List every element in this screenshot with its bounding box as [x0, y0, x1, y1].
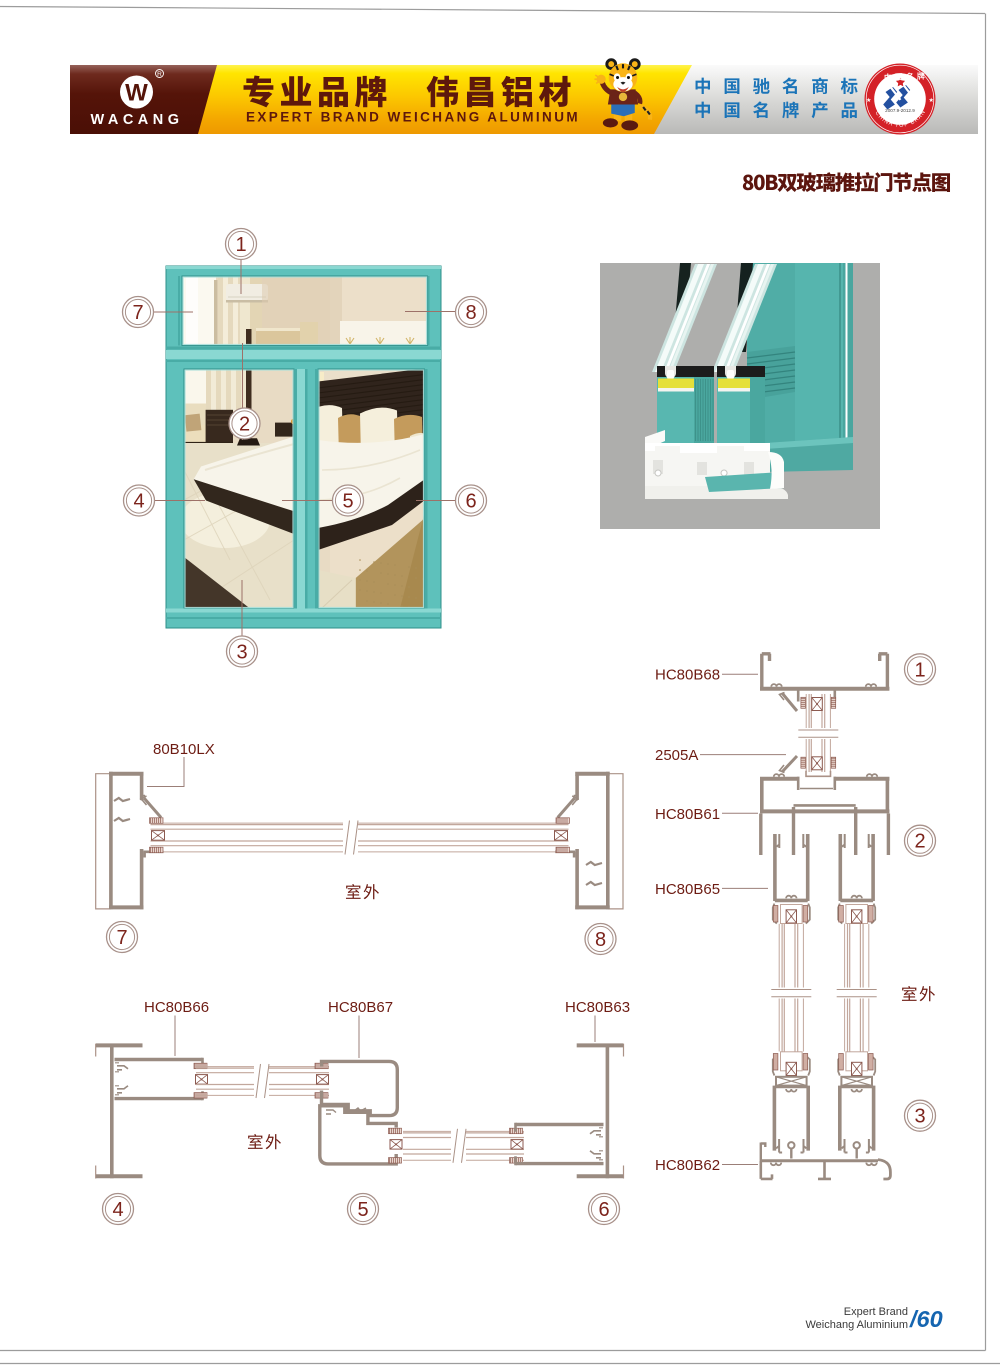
svg-text:HC80B65: HC80B65 [655, 881, 720, 898]
svg-text:★: ★ [866, 97, 871, 104]
svg-text:5: 5 [342, 491, 353, 513]
svg-text:Weichang Aluminium: Weichang Aluminium [805, 1319, 908, 1331]
svg-text:6: 6 [598, 1199, 609, 1221]
svg-text:WACANG: WACANG [90, 112, 183, 128]
svg-text:3: 3 [236, 642, 247, 664]
svg-text:HC80B62: HC80B62 [655, 1157, 720, 1174]
svg-text:EXPERT BRAND WEICHANG ALUMINUM: EXPERT BRAND WEICHANG ALUMINUM [246, 110, 580, 125]
svg-text:1: 1 [235, 234, 246, 256]
svg-text:2: 2 [239, 414, 250, 436]
svg-text:HC80B66: HC80B66 [144, 999, 209, 1016]
svg-text:HC80B67: HC80B67 [328, 999, 393, 1016]
svg-text:4: 4 [133, 491, 144, 513]
svg-text:HC80B61: HC80B61 [655, 806, 720, 823]
svg-text:2: 2 [914, 831, 925, 853]
svg-text:/60: /60 [909, 1306, 943, 1332]
svg-text:2007.9-2012.9: 2007.9-2012.9 [885, 108, 915, 113]
svg-text:HC80B63: HC80B63 [565, 999, 630, 1016]
svg-text:7: 7 [116, 927, 127, 949]
svg-text:Expert Brand: Expert Brand [844, 1306, 908, 1318]
svg-text:★: ★ [929, 97, 934, 104]
svg-text:8: 8 [465, 302, 476, 324]
svg-text:HC80B68: HC80B68 [655, 667, 720, 684]
svg-text:7: 7 [132, 302, 143, 324]
svg-text:6: 6 [465, 491, 476, 513]
svg-text:8: 8 [595, 929, 606, 951]
svg-text:5: 5 [357, 1199, 368, 1221]
svg-text:80B10LX: 80B10LX [153, 741, 215, 758]
svg-text:2505A: 2505A [655, 747, 698, 764]
svg-text:3: 3 [914, 1106, 925, 1128]
svg-text:R: R [157, 71, 162, 78]
svg-text:1: 1 [914, 659, 925, 681]
svg-text:4: 4 [112, 1199, 123, 1221]
